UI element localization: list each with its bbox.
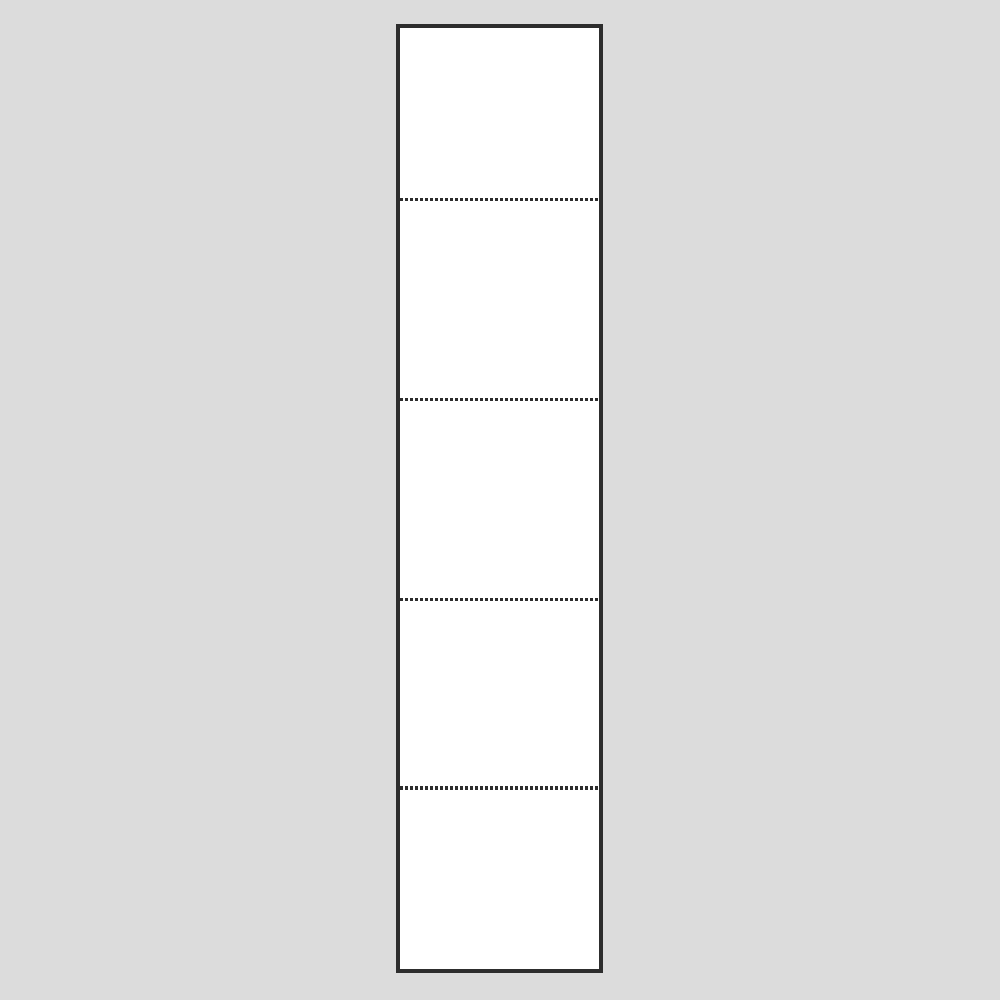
strip-panel (396, 24, 603, 973)
strip-segment-3 (400, 401, 599, 598)
canvas (0, 0, 1000, 1000)
strip-segment-2 (400, 201, 599, 398)
strip-segment-4 (400, 601, 599, 786)
strip-segment-5 (400, 790, 599, 969)
strip-segment-1 (400, 28, 599, 198)
